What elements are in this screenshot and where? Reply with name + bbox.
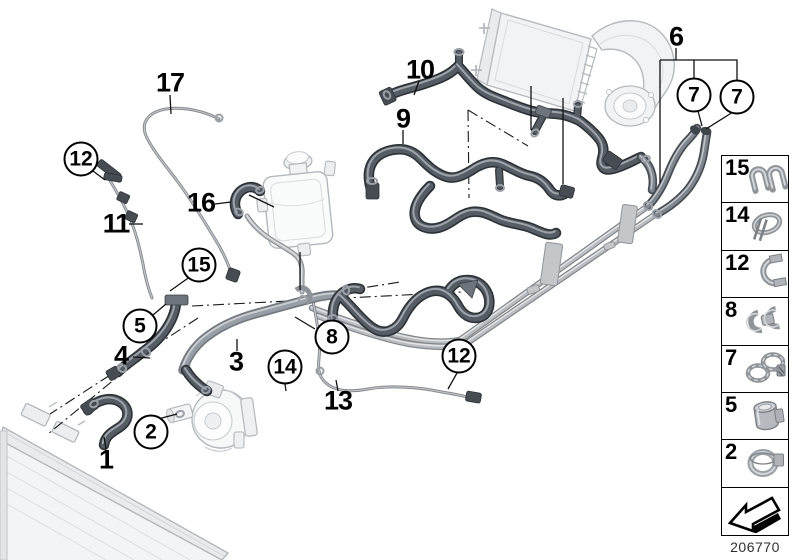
callout-7[interactable]: 7 — [677, 78, 712, 113]
callout-17[interactable]: 17 — [156, 70, 184, 97]
callout-16[interactable]: 16 — [187, 190, 215, 217]
legend-item-14[interactable]: 14 — [721, 202, 789, 251]
hose-clamp-pair-icon — [744, 347, 788, 392]
legend-item-5[interactable]: 5 — [721, 392, 789, 441]
legend-item-number: 2 — [725, 440, 737, 464]
legend-item-7[interactable]: 7 — [721, 345, 789, 394]
callout-14[interactable]: 14 — [268, 350, 303, 385]
callout-11[interactable]: 11 — [103, 211, 130, 238]
direction-arrow-cell — [721, 487, 789, 536]
legend-sidebar: 15 14 12 8 7 5 2 — [721, 155, 789, 536]
callout-13[interactable]: 13 — [324, 388, 352, 415]
callout-1[interactable]: 1 — [99, 447, 113, 474]
callout-5[interactable]: 5 — [123, 309, 158, 344]
callout-12[interactable]: 12 — [64, 142, 99, 177]
callout-7[interactable]: 7 — [720, 80, 755, 115]
pipe-holder-clip-icon — [744, 252, 788, 297]
parts-diagram: 1711161096431131215521481277 15 14 12 8 … — [0, 0, 800, 560]
callout-6[interactable]: 6 — [669, 24, 683, 51]
sleeve-clamp-icon — [744, 394, 788, 439]
legend-item-2[interactable]: 2 — [721, 439, 789, 488]
legend-item-number: 5 — [725, 393, 737, 417]
legend-item-12[interactable]: 12 — [721, 250, 789, 299]
callout-4[interactable]: 4 — [114, 343, 128, 370]
callout-15[interactable]: 15 — [182, 248, 217, 283]
legend-item-15[interactable]: 15 — [721, 155, 789, 204]
direction-of-travel-arrow-icon — [725, 491, 788, 534]
legend-item-8[interactable]: 8 — [721, 297, 789, 346]
double-line-clip-icon — [744, 157, 788, 202]
callout-8[interactable]: 8 — [315, 320, 350, 355]
callout-12[interactable]: 12 — [442, 339, 477, 374]
charge-air-cooler — [471, 9, 674, 126]
callout-10[interactable]: 10 — [406, 57, 434, 84]
ring-clamp-icon — [744, 441, 788, 486]
callout-2[interactable]: 2 — [134, 415, 169, 450]
callout-3[interactable]: 3 — [229, 349, 243, 376]
diagram-number: 206770 — [711, 539, 799, 555]
legend-item-number: 8 — [725, 298, 737, 322]
spring-band-clamp-icon — [744, 204, 788, 249]
double-hose-clip-icon — [744, 299, 788, 344]
legend-item-number: 7 — [725, 346, 737, 370]
callout-9[interactable]: 9 — [396, 106, 410, 133]
